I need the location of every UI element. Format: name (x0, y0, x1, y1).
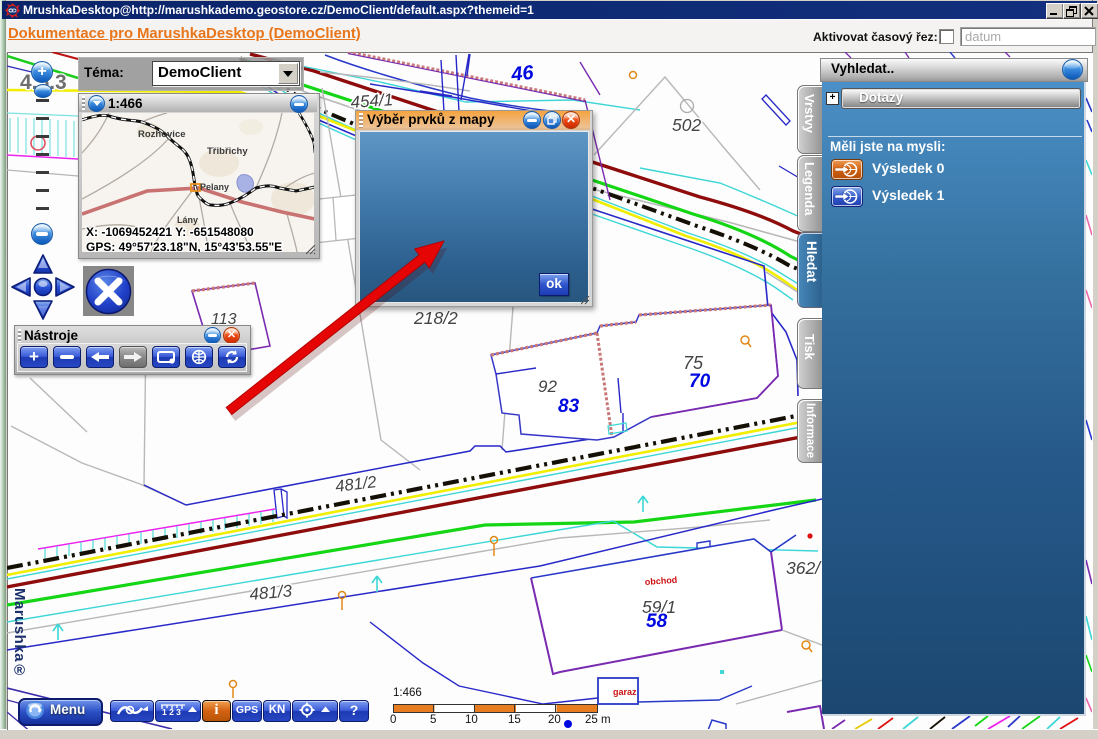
svg-text:362/: 362/ (786, 558, 822, 578)
svg-text:Lány: Lány (177, 215, 198, 225)
svg-text:481/2: 481/2 (334, 473, 377, 496)
svg-text:Pelany: Pelany (200, 182, 229, 192)
svg-text:X: -1069452421 Y: -651548080: X: -1069452421 Y: -651548080 (86, 225, 254, 239)
svg-text:75: 75 (683, 353, 704, 373)
svg-text:70: 70 (689, 371, 711, 392)
svg-text:502: 502 (672, 115, 701, 135)
svg-text:58: 58 (646, 611, 668, 632)
svg-text:218/2: 218/2 (413, 308, 458, 328)
svg-text:46: 46 (509, 62, 535, 86)
svg-text:Rozhovice: Rozhovice (138, 129, 186, 140)
svg-text:481/3: 481/3 (249, 581, 294, 604)
svg-text:83: 83 (558, 396, 580, 417)
svg-text:GPS: 49°57'23.18"N, 15°43'53.5: GPS: 49°57'23.18"N, 15°43'53.55"E (86, 240, 282, 252)
svg-text:Třibřichy: Třibřichy (207, 146, 248, 157)
svg-text:1 2 3: 1 2 3 (162, 707, 181, 717)
svg-text:92: 92 (538, 377, 557, 396)
svg-text:454/1: 454/1 (350, 90, 394, 112)
svg-text:garaz: garaz (613, 687, 637, 697)
